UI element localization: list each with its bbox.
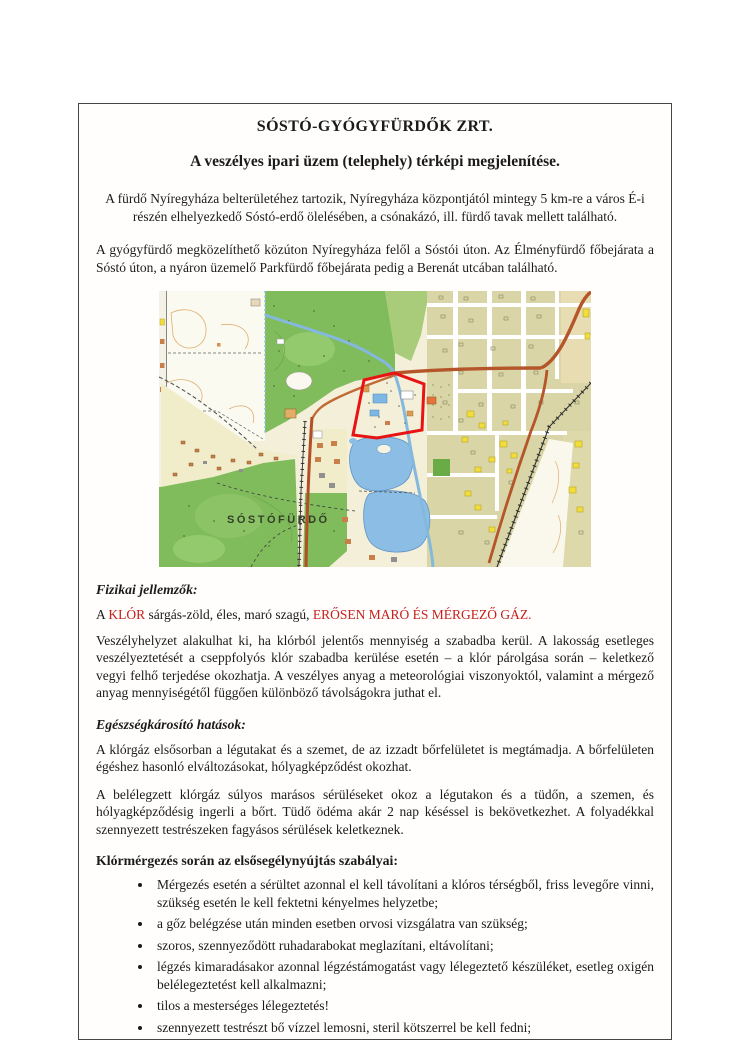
page-title: SÓSTÓ-GYÓGYFÜRDŐK ZRT.	[96, 118, 654, 136]
map-urban-east-area	[427, 291, 591, 567]
document-border-frame: SÓSTÓ-GYÓGYFÜRDŐK ZRT. A veszélyes ipari…	[78, 103, 672, 1040]
klor-word-red: KLÓR	[108, 607, 145, 622]
first-aid-rule-item: Mérgezés esetén a sérültet azonnal el ke…	[153, 876, 654, 911]
scanned-document-page: { "page": { "title": "SÓSTÓ-GYÓGYFÜRDŐK …	[0, 0, 750, 1061]
klor-mid: sárgás-zöld, éles, maró szagú,	[145, 607, 313, 622]
chlorine-description-line: A KLÓR sárgás-zöld, éles, maró szagú, ER…	[96, 606, 654, 624]
site-map-figure: SÓSTÓFÜRDŐ	[159, 291, 591, 567]
page-subtitle: A veszélyes ipari üzem (telephely) térké…	[96, 153, 654, 171]
intro-paragraph-2: A gyógyfürdő megközelíthető közúton Nyír…	[96, 241, 654, 276]
klor-end: .	[528, 607, 531, 622]
physical-paragraph: Veszélyhelyzet alakulhat ki, ha klórból …	[96, 632, 654, 702]
lake-island	[377, 445, 391, 454]
first-aid-rule-item: szoros, szennyeződött ruhadarabokat megl…	[153, 937, 654, 955]
first-aid-rule-item: szennyezett testrészt bő vízzel lemosni,…	[153, 1019, 654, 1037]
section-heading-health: Egészségkárosító hatások:	[96, 717, 654, 733]
first-aid-rule-item: légzés kimaradásakor azonnal légzéstámog…	[153, 958, 654, 993]
first-aid-rules-list: Mérgezés esetén a sérültet azonnal el ke…	[96, 876, 654, 1036]
first-aid-rule-item: tilos a mesterséges lélegeztetés!	[153, 997, 654, 1015]
health-paragraph-2: A belélegzett klórgáz súlyos marásos sér…	[96, 786, 654, 839]
section-heading-physical: Fizikai jellemzők:	[96, 582, 654, 598]
site-map: SÓSTÓFÜRDŐ	[159, 291, 591, 567]
intro-paragraph-1: A fürdő Nyíregyháza belterületéhez tarto…	[96, 190, 654, 225]
first-aid-rule-item: a gőz belégzése után minden esetben orvo…	[153, 915, 654, 933]
section-heading-first-aid: Klórmérgezés során az elsősegélynyújtás …	[96, 853, 654, 869]
stadium-building	[286, 372, 312, 390]
klor-prefix: A	[96, 607, 108, 622]
green-field	[433, 459, 450, 476]
health-paragraph-1: A klórgáz elsősorban a légutakat és a sz…	[96, 741, 654, 776]
danger-phrase-red: ERŐSEN MARÓ ÉS MÉRGEZŐ GÁZ	[313, 607, 528, 622]
map-label: SÓSTÓFÜRDŐ	[227, 513, 330, 526]
